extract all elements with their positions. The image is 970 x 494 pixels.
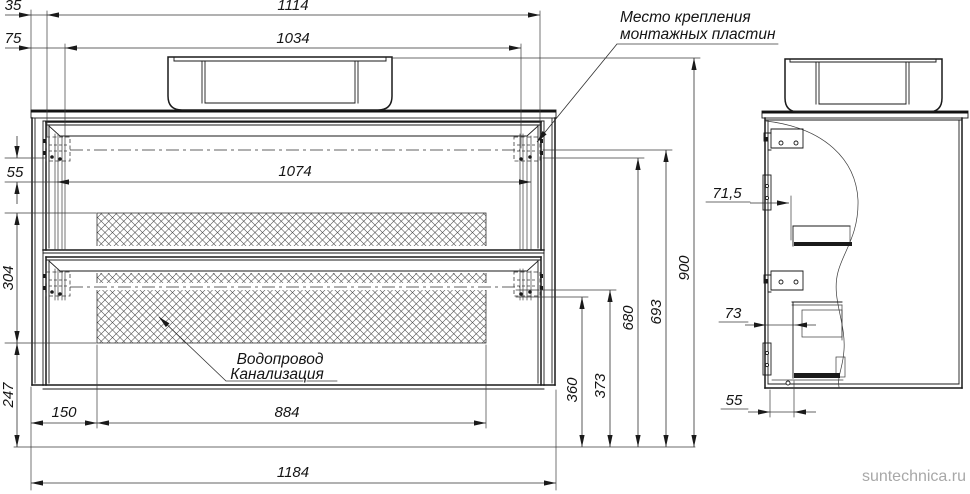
dim-55-left: 55	[7, 164, 24, 181]
dim-900: 900	[676, 255, 693, 281]
side-bracket-middle	[764, 271, 803, 292]
sink-basin-side	[785, 59, 942, 112]
note-mounting-line2: монтажных пластин	[620, 26, 776, 43]
drawing-svg: 71,5 73 55	[0, 0, 970, 494]
dim-373: 373	[592, 373, 609, 399]
dim-680: 680	[620, 305, 637, 331]
front-view	[31, 57, 556, 389]
mounting-plate-top-left	[43, 137, 70, 161]
utilities-hatch-area	[97, 213, 486, 343]
dim-693: 693	[648, 299, 665, 325]
mounting-plate-bottom-left	[43, 272, 70, 296]
side-dim-71-5: 71,5	[712, 185, 742, 202]
section-break-curve	[766, 121, 858, 387]
side-drawer-sections	[772, 226, 852, 385]
side-rail-strip-bottom	[763, 343, 771, 375]
side-view: 71,5 73 55	[706, 59, 968, 417]
countertop-front	[31, 110, 556, 118]
dim-1184: 1184	[277, 464, 309, 481]
side-dim-73: 73	[725, 305, 742, 322]
dim-1034: 1034	[276, 30, 309, 47]
side-dim-55: 55	[726, 392, 743, 409]
dim-75: 75	[5, 30, 22, 47]
side-bracket-top	[764, 129, 803, 150]
watermark-text: suntechnica.ru	[862, 468, 966, 485]
dim-150: 150	[51, 404, 77, 421]
technical-drawing-vanity: 71,5 73 55	[0, 0, 970, 494]
dim-360: 360	[564, 377, 581, 403]
side-dimensions: 71,5 73 55	[706, 185, 816, 417]
note-utility-line2: Канализация	[230, 366, 324, 383]
dim-884: 884	[274, 404, 299, 421]
note-mounting-plates: Место крепления монтажных пластин	[537, 9, 778, 142]
dim-1114: 1114	[277, 0, 308, 14]
dim-1074: 1074	[278, 163, 311, 180]
note-mounting-line1: Место крепления	[620, 9, 751, 26]
dim-35: 35	[5, 0, 22, 14]
side-rail-strip-top	[763, 175, 771, 210]
dim-247: 247	[0, 382, 17, 409]
dim-304: 304	[0, 265, 17, 290]
sink-basin-front	[168, 57, 392, 110]
